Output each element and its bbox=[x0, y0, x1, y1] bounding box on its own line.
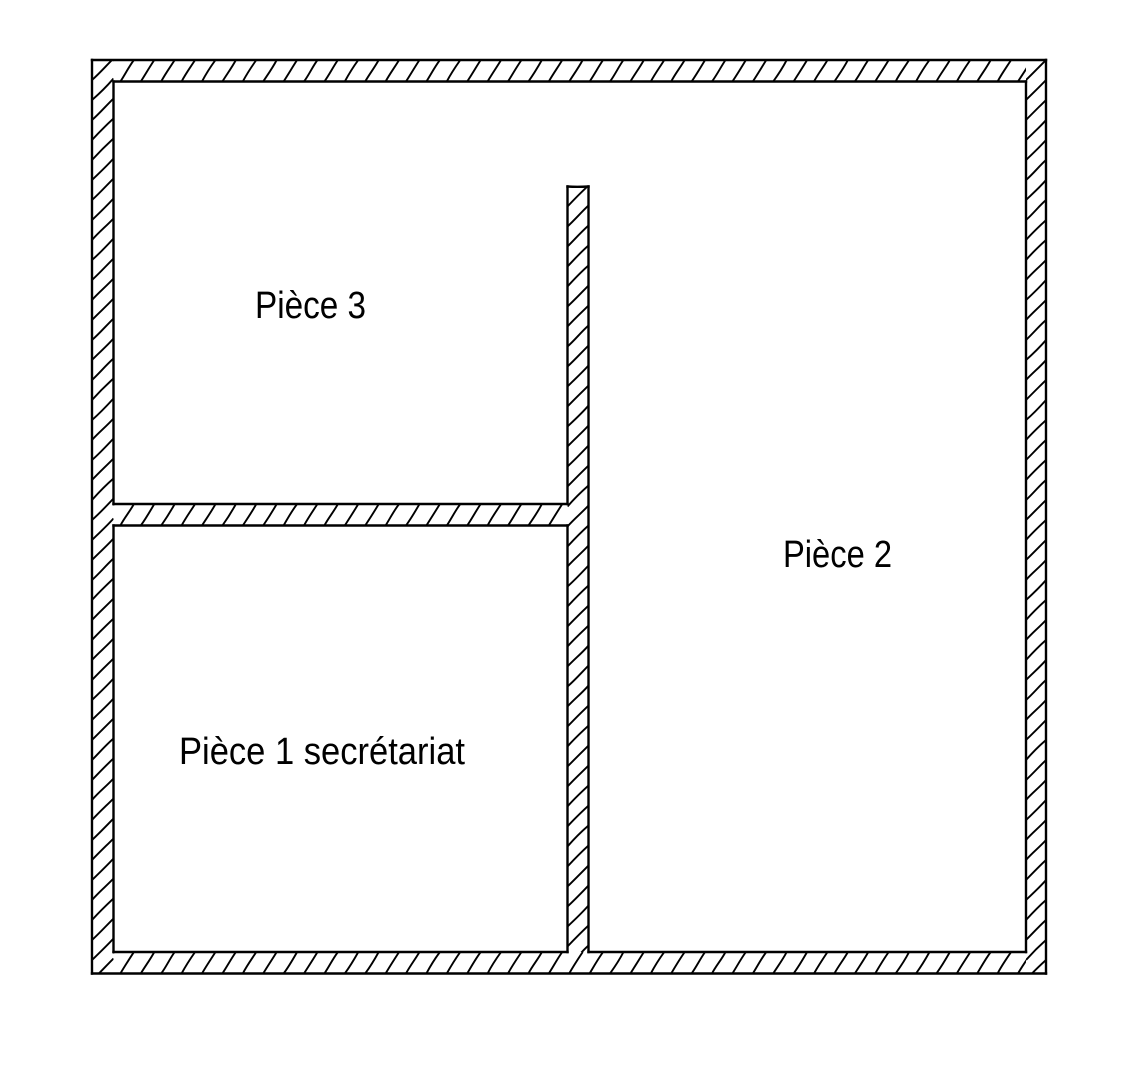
svg-text:Pièce 3: Pièce 3 bbox=[255, 285, 366, 327]
svg-text:Pièce 1 secrétariat: Pièce 1 secrétariat bbox=[179, 731, 465, 773]
svg-text:Pièce 2: Pièce 2 bbox=[783, 534, 892, 576]
